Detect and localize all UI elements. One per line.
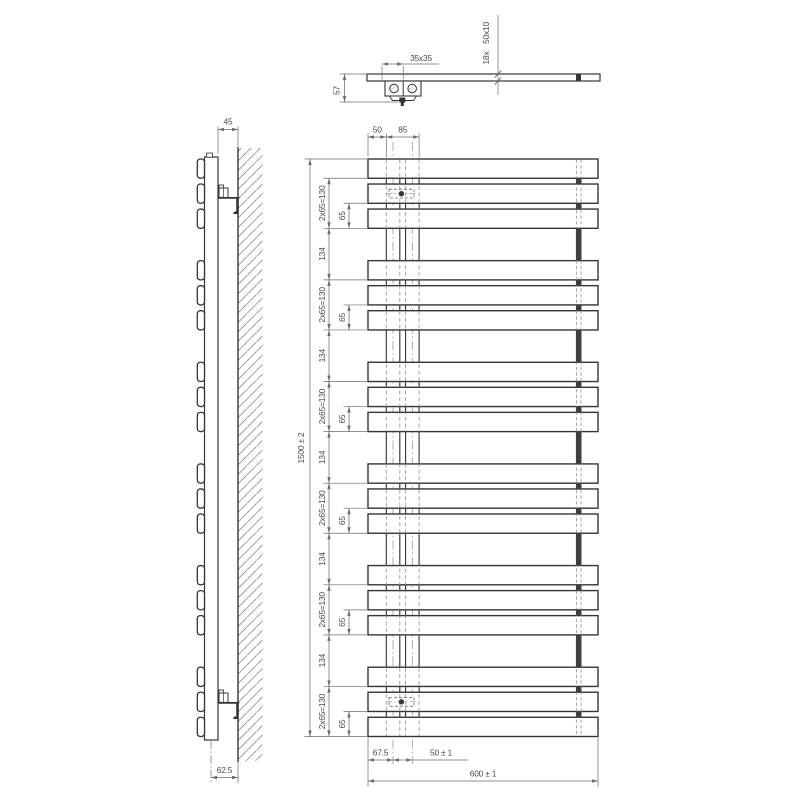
dim-arrow (308, 731, 311, 737)
dim-arrow (387, 758, 393, 761)
dim-arrow (327, 426, 330, 432)
slat-front (368, 159, 598, 178)
dim-arrow (347, 610, 350, 616)
connector-visible-segment (576, 228, 582, 260)
collector-tube-side (205, 157, 219, 740)
dim-group-span-label: 2x65=130 (317, 592, 327, 628)
connector-visible-segment (576, 508, 582, 514)
connector-visible-segment (576, 432, 582, 464)
front-view: 2x65=130651342x65=130651342x65=130651342… (305, 134, 599, 788)
dim-arrow (308, 159, 311, 165)
dim-end-to-axis-label: 67.5 (373, 748, 389, 758)
dim-arrow (393, 758, 399, 761)
dim-arrow (327, 382, 330, 388)
connector-bar-section (576, 75, 581, 81)
connector-visible-segment (576, 533, 582, 565)
slat-side (197, 261, 204, 280)
slat-side (197, 591, 204, 610)
dim-arrow (327, 731, 330, 737)
dim-arrow (347, 711, 350, 717)
connector-visible-segment (576, 686, 582, 692)
dim-arrow (232, 128, 238, 131)
slat-side (197, 489, 204, 508)
slat-front (368, 514, 598, 533)
dim-arrow (347, 426, 350, 432)
dim-wall-clearance-label: 45 (224, 117, 233, 127)
dim-slat-pitch-label: 65 (337, 211, 347, 220)
slat-front (368, 311, 598, 330)
connector-visible-segment (576, 280, 582, 286)
dim-arrow (413, 135, 419, 138)
dim-arrow (327, 579, 330, 585)
dim-arrow (343, 96, 346, 102)
dim-group-span-label: 2x65=130 (317, 693, 327, 729)
slat-side (197, 311, 204, 330)
dim-end-to-tube-label: 50 (373, 125, 382, 135)
dim-arrow (406, 758, 412, 761)
dim-arrow (347, 324, 350, 330)
dim-arrow (327, 483, 330, 489)
dim-overall-height-label: 1500 ± 2 (296, 432, 306, 463)
dim-arrow (327, 585, 330, 591)
dim-arrow (327, 376, 330, 382)
dim-arrow (327, 280, 330, 286)
slat-side (197, 387, 204, 406)
dim-slat-pitch-label: 65 (337, 719, 347, 728)
slat-side (197, 464, 204, 483)
dim-slat-pitch-label: 65 (337, 516, 347, 525)
dim-arrow (327, 533, 330, 539)
top-view (340, 15, 601, 106)
connector-visible-segment (576, 203, 582, 209)
dim-arrow (327, 635, 330, 641)
connector-visible-segment (576, 178, 582, 184)
dim-arrow (380, 135, 386, 138)
slat-side (197, 514, 204, 533)
slat-side (197, 412, 204, 431)
dim-arrow (347, 222, 350, 228)
slat-front (368, 667, 598, 686)
dim-arrow (327, 274, 330, 280)
technical-drawing-canvas: 2x65=130651342x65=130651342x65=130651342… (0, 0, 800, 800)
connector-visible-segment (576, 610, 582, 616)
bracket-foot (233, 715, 238, 720)
slat-side (197, 209, 204, 228)
dim-arrow (327, 178, 330, 184)
dim-arrow (327, 330, 330, 336)
dim-arrow (368, 135, 374, 138)
dim-arrow (397, 62, 403, 65)
slat-side (197, 667, 204, 686)
connector-visible-segment (576, 711, 582, 717)
dim-arrow (368, 758, 374, 761)
dim-arrow (343, 74, 346, 80)
dim-group-span-label: 2x65=130 (317, 185, 327, 221)
wall-hatch (239, 148, 263, 761)
dim-arrow (347, 407, 350, 413)
connector-visible-segment (576, 382, 582, 388)
dim-slat-pitch-label: 65 (337, 414, 347, 423)
dim-group-gap-label: 134 (317, 653, 327, 667)
side-view (197, 127, 262, 784)
dim-arrow (327, 228, 330, 234)
dim-arrow (592, 779, 598, 782)
slat-front (368, 412, 598, 431)
dim-arrow (327, 629, 330, 635)
dim-overall-width-label: 600 ± 1 (470, 769, 497, 779)
dim-arrow (327, 477, 330, 483)
connector-visible-segment (576, 330, 582, 362)
slat-side (197, 566, 204, 585)
wall-anchor-block (399, 98, 405, 103)
slat-side (197, 159, 204, 178)
dim-arrow (211, 776, 217, 779)
slat-side (197, 717, 204, 736)
dim-arrow (347, 527, 350, 533)
dim-group-gap-label: 134 (317, 349, 327, 363)
dim-arrow (347, 629, 350, 635)
mounting-screw (399, 191, 404, 196)
slat-side (197, 616, 204, 635)
dim-group-span-label: 2x65=130 (317, 287, 327, 323)
slat-side (197, 362, 204, 381)
dim-arrow (327, 324, 330, 330)
slat-side (197, 184, 204, 203)
slat-side (197, 286, 204, 305)
dim-arrow (327, 527, 330, 533)
dim-arrow (327, 680, 330, 686)
dim-arrow (347, 305, 350, 311)
dim-tube-span-label: 85 (398, 125, 407, 135)
connector-visible-segment (576, 585, 582, 591)
dim-arrow (347, 203, 350, 209)
dim-axis-spacing-label: 50 ± 1 (430, 748, 453, 758)
slat-front (368, 489, 598, 508)
dim-arrow (232, 776, 238, 779)
dim-arrow (386, 135, 392, 138)
slat-front (368, 286, 598, 305)
dim-slat-count-label: 18x (481, 51, 491, 65)
slat-front (368, 209, 598, 228)
connector-visible-segment (576, 483, 582, 489)
dim-arrow (347, 508, 350, 514)
connector-visible-segment (576, 635, 582, 667)
dim-arrow (218, 128, 224, 131)
dim-arrow (327, 686, 330, 692)
dim-slat-profile-label: 50x10 (481, 22, 491, 44)
dim-arrow (347, 731, 350, 737)
dim-group-gap-label: 134 (317, 247, 327, 261)
dim-slat-pitch-label: 65 (337, 617, 347, 626)
slat-front (368, 616, 598, 635)
bracket-wall-plate (236, 703, 239, 716)
slat-front (368, 464, 598, 483)
slat-front (368, 387, 598, 406)
dim-depth-label: 57 (332, 86, 342, 95)
slat-front (368, 261, 598, 280)
dim-axis-to-wall-label: 62.5 (217, 765, 233, 775)
dim-arrow (368, 779, 374, 782)
radiator-dimension-drawing: 2x65=130651342x65=130651342x65=130651342… (0, 0, 800, 800)
connector-visible-segment (576, 407, 582, 413)
wall-anchor-pin (401, 103, 404, 107)
slat-side (197, 692, 204, 711)
slat-front (368, 566, 598, 585)
dim-arrow (327, 222, 330, 228)
vent-plug (207, 153, 213, 157)
dim-tube-section-label: 35x35 (410, 53, 432, 63)
dim-group-span-label: 2x65=130 (317, 490, 327, 526)
bracket-wall-plate (236, 198, 239, 211)
slat-front (368, 591, 598, 610)
dim-arrow (382, 62, 388, 65)
slat-profile-top (367, 74, 600, 81)
slat-front (368, 717, 598, 736)
bracket-foot (233, 210, 238, 215)
dim-arrow (327, 432, 330, 438)
dim-group-span-label: 2x65=130 (317, 388, 327, 424)
dim-group-gap-label: 134 (317, 552, 327, 566)
dim-slat-pitch-label: 65 (337, 312, 347, 321)
slat-front (368, 362, 598, 381)
dim-group-gap-label: 134 (317, 450, 327, 464)
connector-visible-segment (576, 305, 582, 311)
mounting-screw (399, 699, 404, 704)
